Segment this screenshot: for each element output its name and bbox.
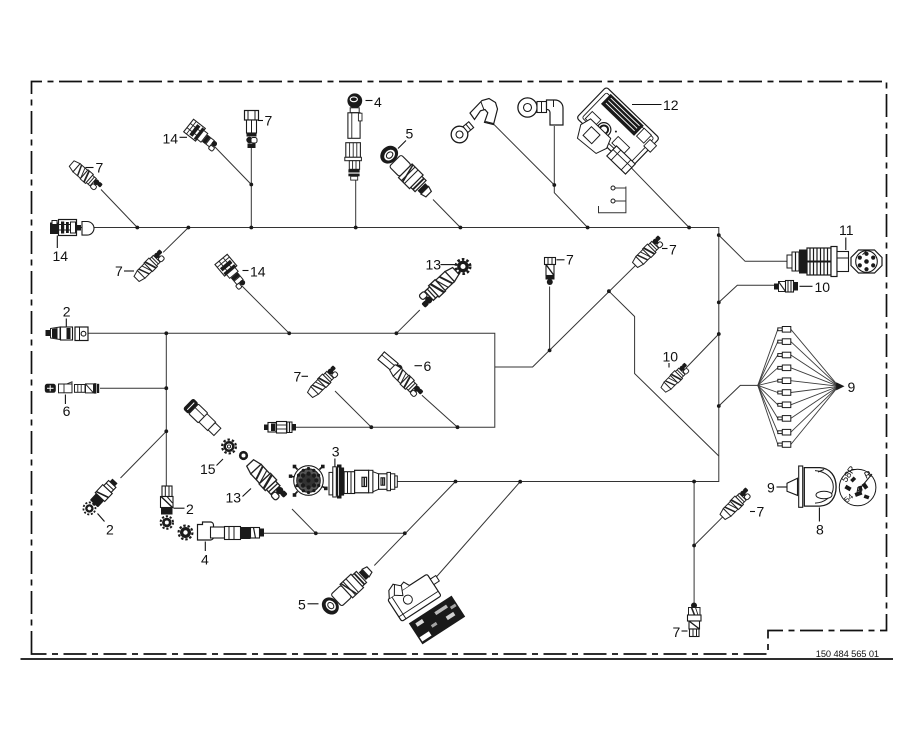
svg-text:10: 10	[815, 279, 831, 295]
svg-text:13: 13	[226, 490, 242, 506]
svg-text:13: 13	[426, 257, 442, 273]
svg-text:7: 7	[566, 252, 574, 268]
svg-text:5: 5	[406, 126, 414, 142]
svg-text:7: 7	[673, 624, 681, 640]
svg-text:7: 7	[669, 242, 677, 258]
svg-text:4: 4	[201, 552, 209, 568]
svg-text:4: 4	[374, 94, 382, 110]
svg-text:12: 12	[663, 97, 679, 113]
svg-text:6: 6	[424, 358, 432, 374]
svg-text:5: 5	[298, 597, 306, 613]
svg-text:6: 6	[63, 403, 71, 419]
svg-text:9: 9	[848, 379, 856, 395]
svg-text:15: 15	[200, 461, 216, 477]
svg-text:14: 14	[53, 248, 69, 264]
svg-text:3: 3	[332, 444, 340, 460]
svg-text:14: 14	[250, 264, 266, 280]
svg-text:14: 14	[163, 131, 179, 147]
svg-text:7: 7	[757, 504, 765, 520]
svg-text:2: 2	[63, 304, 71, 320]
svg-text:7: 7	[115, 263, 123, 279]
svg-text:10: 10	[663, 349, 679, 365]
svg-text:150 484 565 01: 150 484 565 01	[816, 649, 879, 659]
svg-text:2: 2	[106, 522, 114, 538]
svg-text:11: 11	[839, 222, 854, 238]
svg-text:7: 7	[96, 160, 104, 176]
svg-text:9: 9	[767, 480, 775, 496]
svg-text:7: 7	[265, 113, 273, 129]
svg-text:7: 7	[294, 369, 302, 385]
svg-text:2: 2	[186, 501, 194, 517]
svg-text:8: 8	[816, 522, 824, 538]
